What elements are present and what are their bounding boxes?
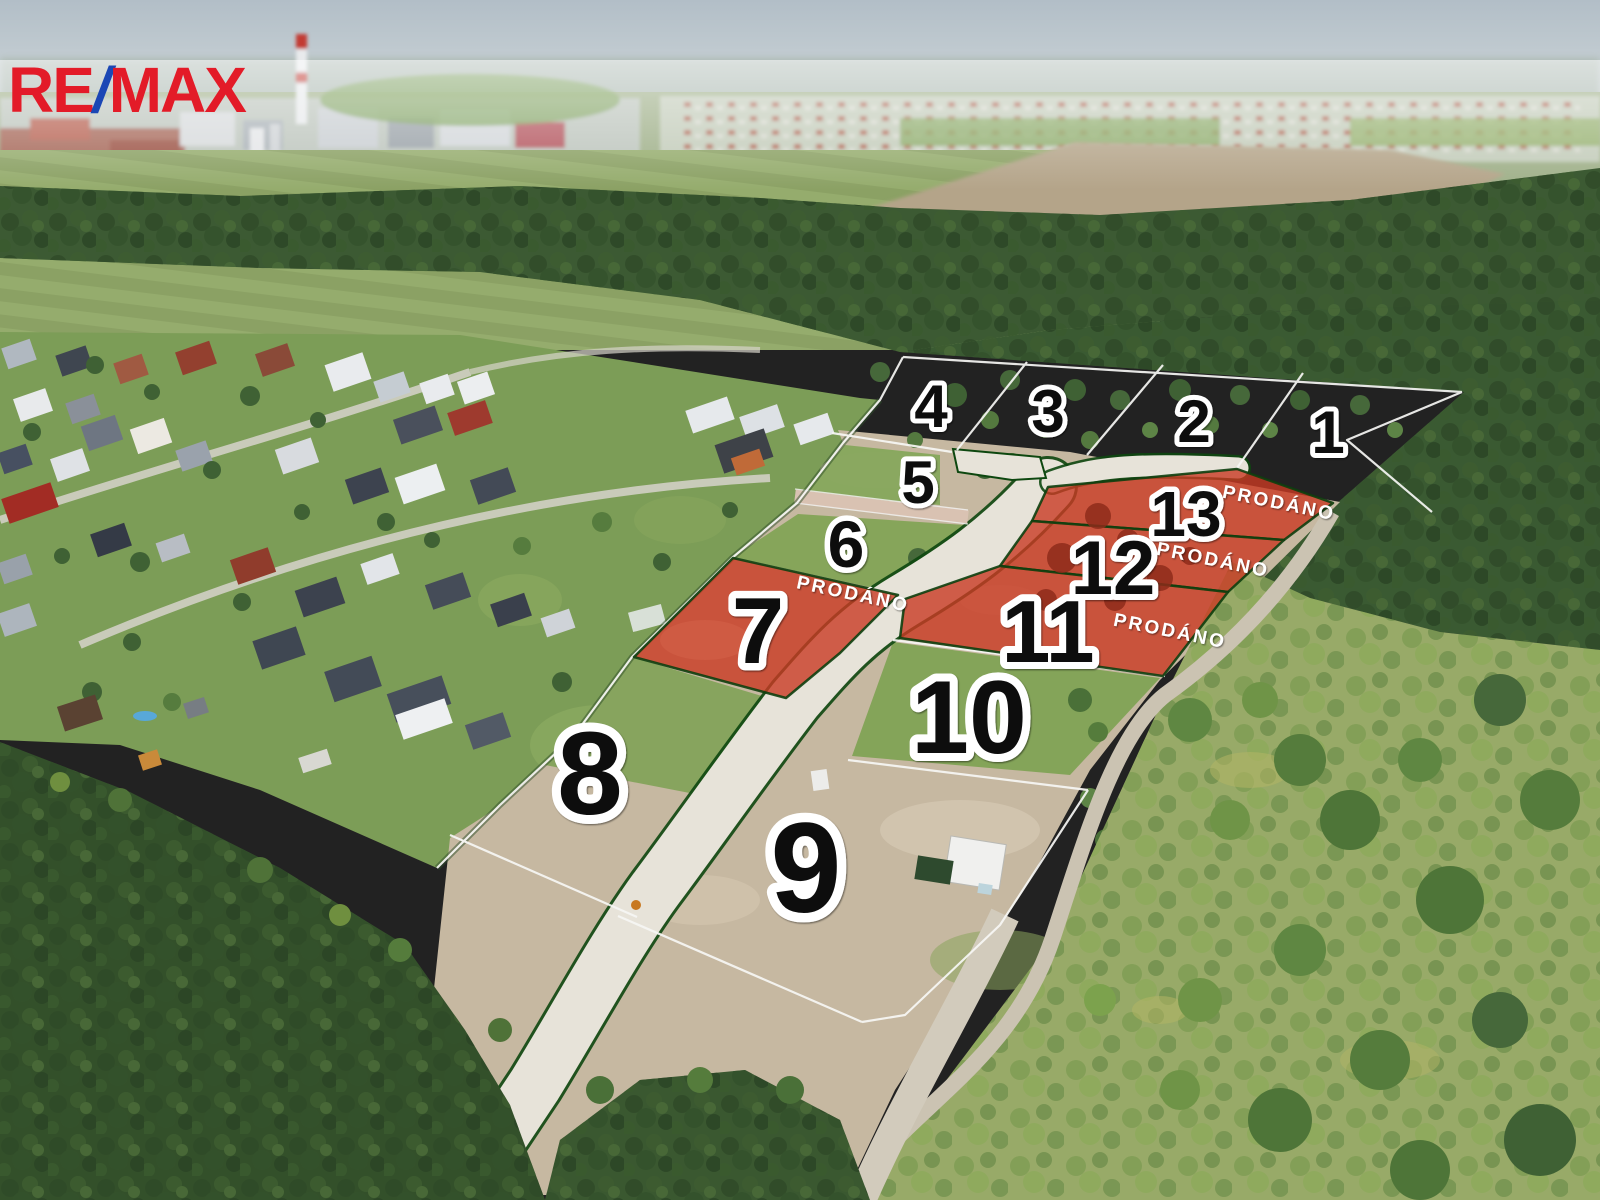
- plot-number-label-5: 5: [901, 449, 934, 516]
- remax-logo-slash: /: [93, 54, 109, 126]
- plot-number-label-6: 6: [828, 507, 865, 581]
- plot-number-label-12: 12: [1071, 526, 1156, 611]
- plot-number-label-3: 3: [1031, 378, 1064, 445]
- remax-logo-max: MAX: [109, 54, 245, 126]
- excavator: [631, 900, 641, 910]
- plot-number-label-9: 9: [770, 797, 841, 940]
- plot-number-label-4: 4: [914, 373, 948, 440]
- plot-number-label-1: 1: [1311, 399, 1344, 466]
- aerial-photo-scene: 1 2 3 4 5 6 7 8 9 10 11 12 13 PRODÁNO PR…: [0, 0, 1600, 1200]
- plot-number-label-2: 2: [1177, 388, 1210, 455]
- plot-number-label-7: 7: [732, 578, 784, 683]
- aerial-photo: 1 2 3 4 5 6 7 8 9 10 11 12 13 PRODÁNO PR…: [0, 0, 1600, 1200]
- plot-number-label-8: 8: [557, 708, 623, 840]
- sign-board: [811, 769, 830, 791]
- remax-logo-re: RE: [8, 54, 93, 126]
- remax-logo: RE/MAX: [8, 58, 245, 122]
